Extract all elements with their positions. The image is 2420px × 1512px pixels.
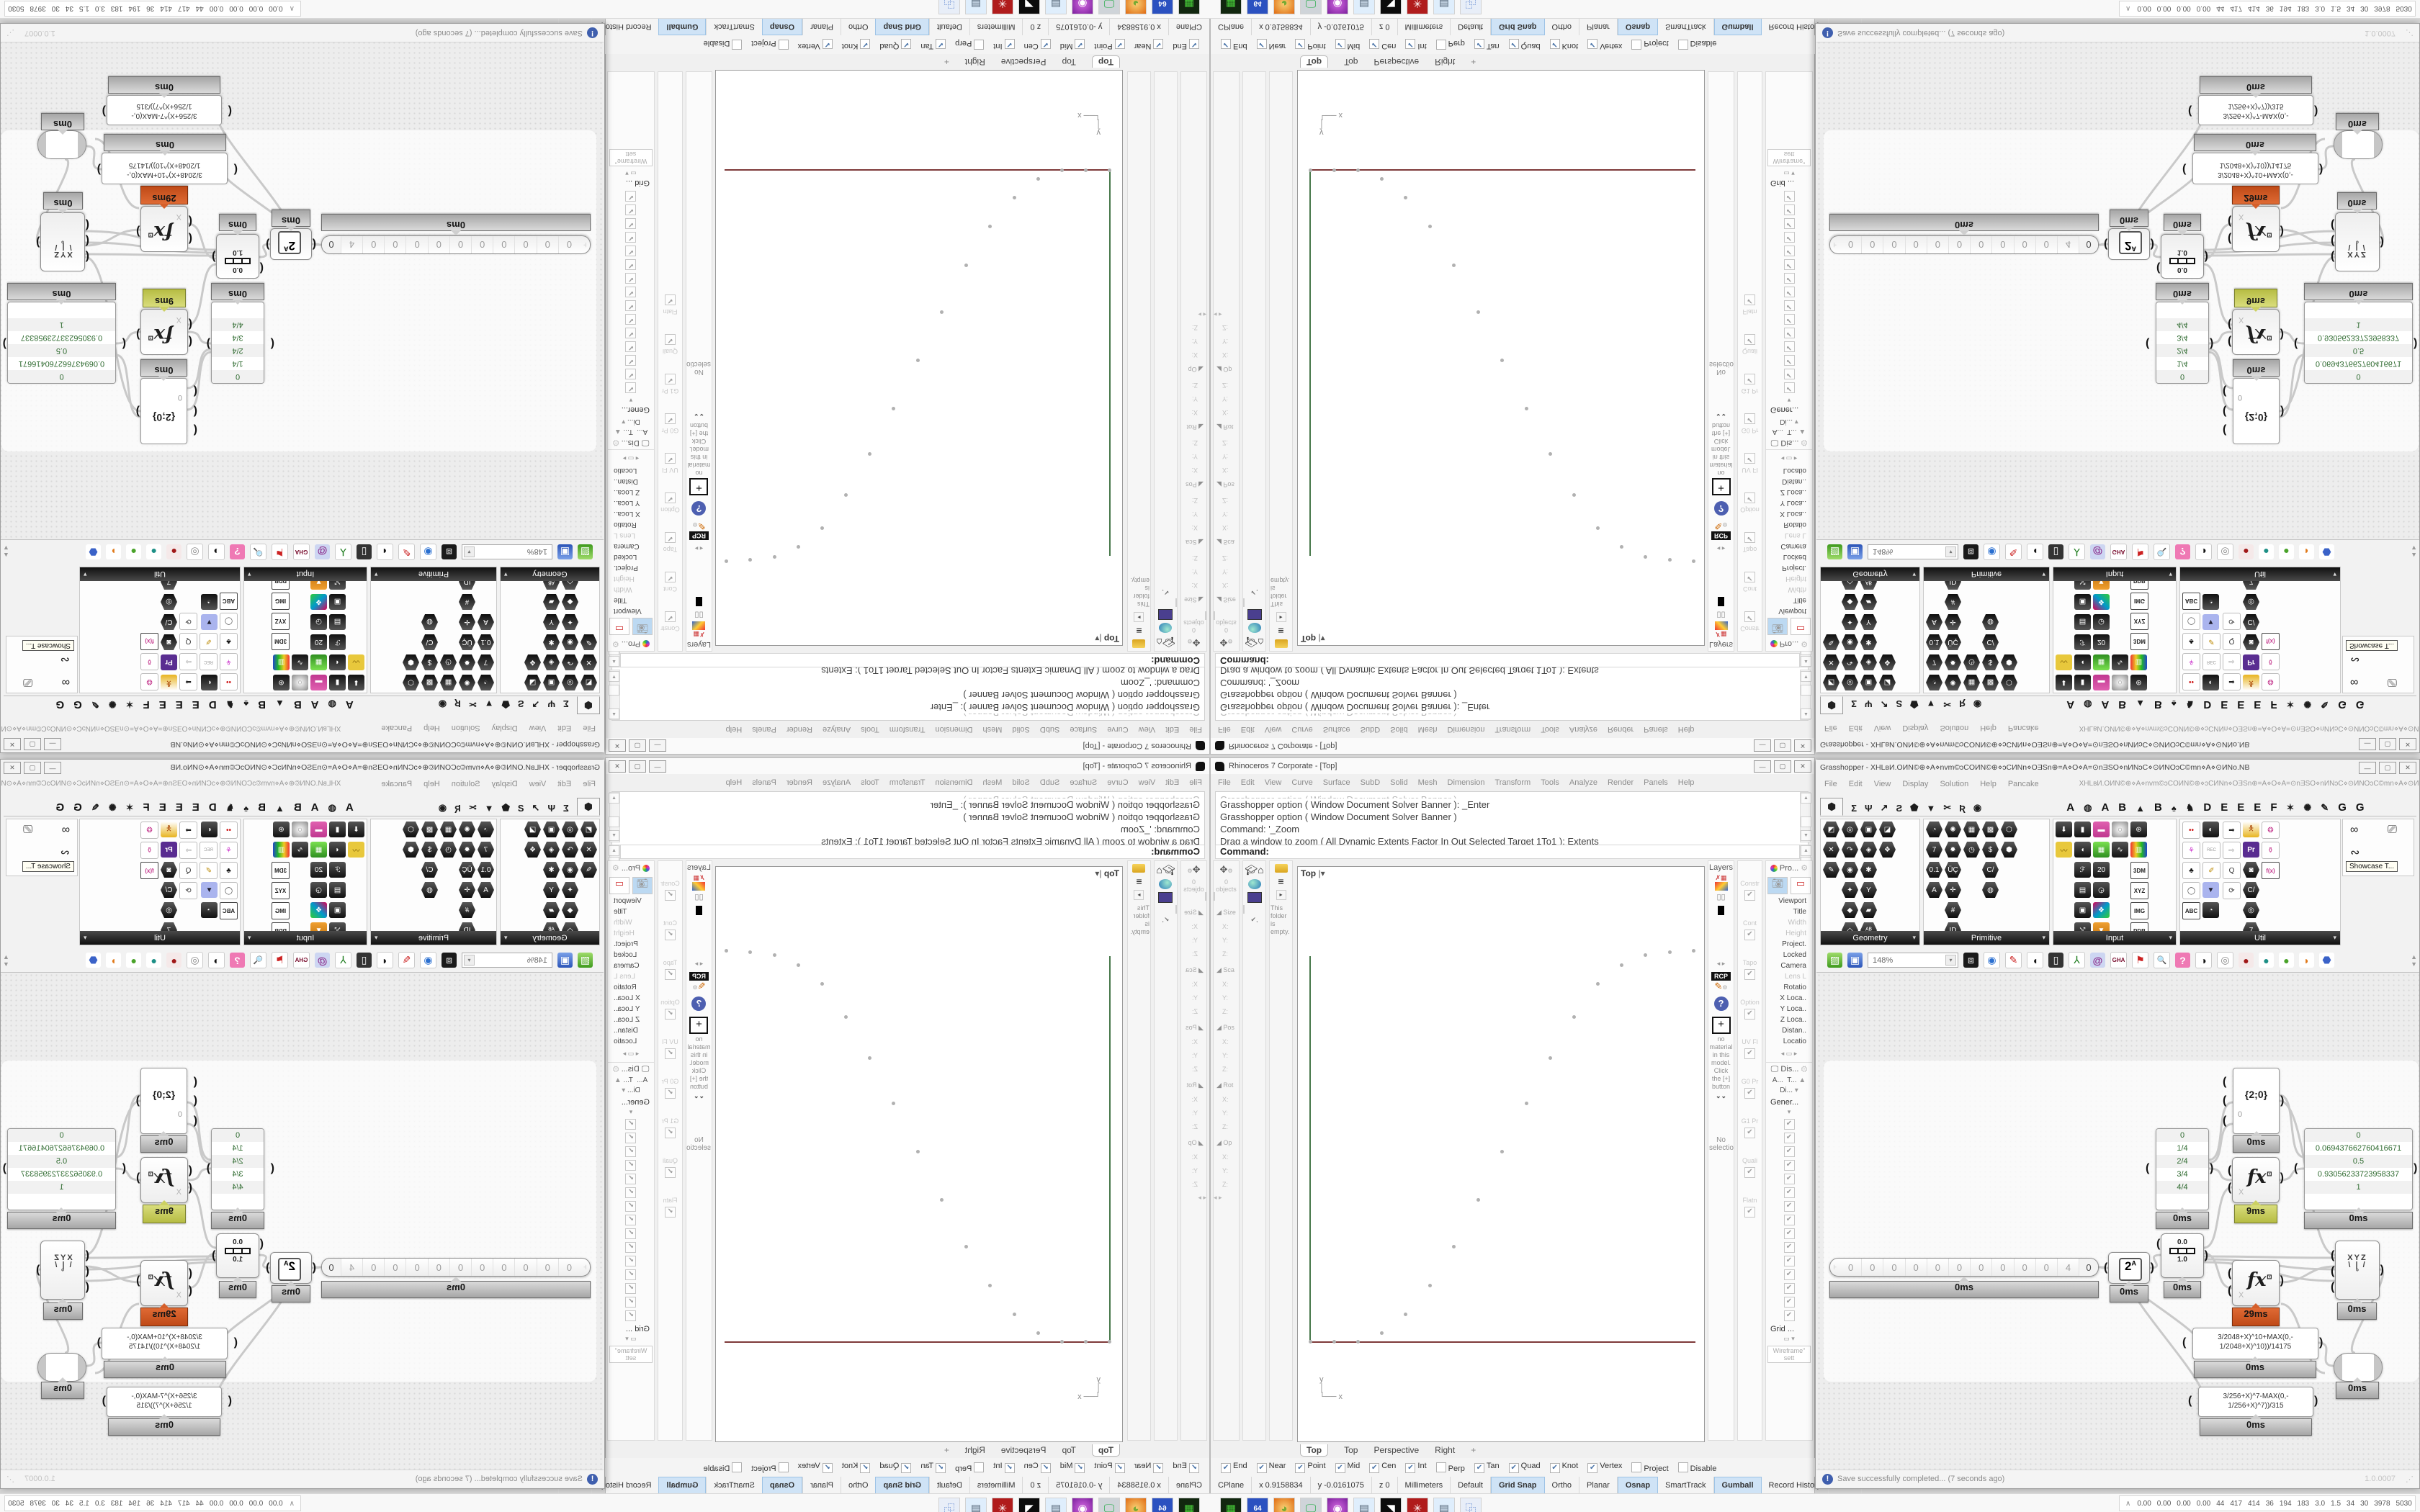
component-icon[interactable]: 〰 — [348, 842, 364, 858]
input-grip[interactable]: ( — [122, 1164, 126, 1173]
component-icon[interactable]: ▣ — [543, 822, 560, 837]
viewport-tab[interactable]: Top — [1344, 1445, 1358, 1455]
scroller-digit[interactable]: 0 — [1971, 1259, 1992, 1276]
viewport-tab[interactable]: Right — [1435, 1445, 1455, 1455]
component-icon[interactable]: ⬡ — [2001, 822, 2017, 837]
component-icon[interactable]: IMG — [2130, 902, 2148, 919]
formula-panel[interactable]: 3/2048+X)^10+MAX(0,-1/2048+X)^10))/14175 — [2192, 1328, 2318, 1359]
gh-toolbar-icon[interactable]: ◑ — [208, 544, 225, 560]
component-icon[interactable]: ♣ — [2182, 633, 2200, 650]
expression-component[interactable]: ( ( X fx⊡ ) — [2232, 309, 2280, 355]
gh-plugin-tab[interactable]: E — [159, 696, 166, 711]
osnap-toggle[interactable]: Tan — [1474, 39, 1500, 50]
glasses-icon[interactable]: ∞ — [62, 675, 70, 688]
display-checkbox[interactable]: ✔ — [626, 355, 637, 366]
power-component[interactable]: ( 2A ) — [270, 228, 312, 260]
component-icon[interactable]: ◖ — [329, 842, 346, 858]
gh-plugin-tab[interactable]: E — [176, 696, 183, 711]
component-icon[interactable]: ⊛ — [2130, 675, 2147, 690]
gh-group-shelf[interactable]: Geometry▾ — [1821, 567, 1919, 581]
gh-toolbar-icon[interactable]: ▣ — [1847, 544, 1863, 559]
gh-toolbar-icon[interactable]: ✎ — [2005, 952, 2022, 968]
output-grip[interactable]: ) — [2205, 1251, 2208, 1260]
gh-toolbar-icon[interactable]: ⧈ — [1963, 953, 1978, 968]
input-grip[interactable]: ( — [189, 1166, 192, 1175]
component-icon[interactable]: ◔ — [2202, 594, 2219, 610]
status-cell[interactable]: y -0.0161075 — [1048, 18, 1109, 35]
scroll-down-icon[interactable]: ▼ — [1801, 830, 1811, 841]
gh-toolbar-icon[interactable]: ◗ — [2299, 953, 2314, 968]
osnap-checkbox[interactable] — [1474, 1463, 1484, 1473]
option-checkbox[interactable]: ✔ — [1744, 492, 1755, 503]
gh-toolbar-icon[interactable]: ⧈ — [442, 953, 457, 968]
display-panel-title[interactable]: 🖵 Dis... ⚙ — [1766, 436, 1812, 450]
expression-component[interactable]: ( ( X fx⊡ ) — [2232, 1157, 2280, 1203]
rhino-menu-item[interactable]: Mesh — [982, 778, 1002, 787]
gh-tab-icon[interactable]: Ψ — [547, 696, 555, 709]
scroll-down-icon[interactable]: ▼ — [1801, 671, 1811, 682]
checkbox-icon[interactable]: ✔, — [1155, 916, 1177, 924]
component-icon[interactable]: ◍ — [1982, 614, 1999, 630]
h-scrollbar[interactable]: ◂ ▭ ▸ — [608, 1050, 654, 1058]
minimize-icon[interactable]: — — [44, 738, 61, 750]
gh-plugin-tab[interactable]: ♞ — [226, 696, 235, 710]
property-row[interactable]: Title — [608, 596, 654, 607]
input-grip[interactable]: ( — [86, 236, 89, 245]
scroller-digit[interactable]: 0 — [362, 236, 384, 253]
values-panel[interactable]: 00.0694376627604166710.50.93056233723958… — [7, 302, 116, 384]
scroller-arrow-icon[interactable]: ⊦ — [1830, 1259, 1840, 1276]
rhino-menu-item[interactable]: File — [1189, 725, 1202, 734]
property-row[interactable]: Y Loca.. — [1766, 1002, 1812, 1013]
osnap-toggle[interactable]: Quad — [879, 39, 911, 50]
component-icon[interactable]: ✦ — [1842, 882, 1858, 898]
display-checkbox[interactable]: ✔ — [626, 382, 637, 393]
component-icon[interactable]: ➡ — [179, 822, 197, 839]
component-icon[interactable]: ✎ — [581, 862, 597, 878]
component-icon[interactable]: ⬢ — [403, 654, 419, 670]
rhino-menu-item[interactable]: Tools — [861, 778, 879, 787]
banner-icon[interactable]: ⎚ — [2388, 675, 2397, 688]
gh-tab-icon[interactable]: ⬟ — [1910, 802, 1918, 816]
component-icon[interactable]: C/ — [1982, 634, 1999, 650]
help-icon[interactable]: ? — [1714, 501, 1729, 516]
component-icon[interactable]: ▼ — [2202, 614, 2219, 630]
osnap-toggle[interactable]: Tan — [920, 1462, 946, 1473]
status-cell[interactable]: z 0 — [1372, 1477, 1398, 1494]
viewport-top[interactable]: Top |▾ y│└── x — [715, 70, 1123, 646]
output-grip[interactable]: ) — [2414, 1164, 2417, 1173]
folder-panel[interactable]: ≡ ▸ This folder is empty. — [1269, 860, 1293, 1441]
component-icon[interactable]: ✺ — [1945, 822, 1961, 837]
gh-tab-icon[interactable]: Σ — [563, 696, 569, 709]
option-checkbox[interactable]: ✔ — [665, 294, 676, 305]
osnap-toggle[interactable]: Point — [1295, 1462, 1325, 1473]
property-row[interactable]: Width — [608, 585, 654, 596]
gh-tab-icon[interactable]: Ψ — [1865, 696, 1873, 709]
expression-component[interactable]: ( ( X fx⊡ ) — [140, 1260, 188, 1306]
component-icon[interactable]: ▼ — [201, 882, 218, 898]
component-icon[interactable]: C/ — [2243, 614, 2259, 630]
viewport-label[interactable]: Top |▾ — [1301, 634, 1325, 644]
close-icon[interactable]: ✕ — [2399, 738, 2416, 750]
osnap-checkbox[interactable] — [1041, 1463, 1051, 1473]
component-icon[interactable]: •• — [2182, 822, 2200, 839]
input-grip[interactable]: ( — [194, 426, 197, 434]
glasses-icon[interactable]: ∞ — [2350, 824, 2358, 837]
pager-icons[interactable]: ◂ ▸ — [1214, 310, 1239, 318]
new-layer-icon[interactable]: ▯▯ — [694, 893, 703, 901]
rcp-icon[interactable]: RCP — [1711, 972, 1731, 981]
osnap-checkbox[interactable] — [779, 1462, 789, 1472]
gh-toolbar-icon[interactable]: ? — [230, 544, 245, 559]
component-icon[interactable]: •• — [220, 822, 238, 839]
component-icon[interactable]: ◪ — [524, 675, 541, 690]
gh-toolbar-icon[interactable]: ? — [2175, 953, 2190, 968]
taskbar-app-icon[interactable]: ✳ — [1407, 1498, 1428, 1512]
transform-panel[interactable]: ✥⚙ 0 objects Size X: Y: Z: — [1213, 860, 1240, 1441]
gh-group-shelf[interactable]: Primitive▾ — [1924, 567, 2049, 581]
display-checkbox[interactable]: ✔ — [626, 1269, 637, 1280]
option-checkbox[interactable]: ✔ — [1744, 413, 1755, 424]
component-icon[interactable]: ◆ — [1842, 902, 1858, 918]
display-checkbox[interactable]: ✔ — [1784, 382, 1795, 393]
color-gradient-icon[interactable] — [693, 621, 706, 630]
gh-plugin-tab[interactable]: B — [2118, 696, 2126, 711]
gh-toolbar-icon[interactable]: 🔍 — [2154, 952, 2170, 968]
properties-column[interactable]: Pro... ⚙ 📷︎▭ ViewportTitleWidthHeightPro… — [1765, 860, 1813, 1441]
scroll-up-icon[interactable]: ▲ — [1801, 708, 1811, 719]
gh-tab-icon[interactable]: ✂ — [1943, 696, 1951, 710]
property-row[interactable]: Width — [1766, 585, 1812, 596]
help-icon[interactable]: ? — [1714, 996, 1729, 1011]
input-grip[interactable]: ( — [2331, 220, 2334, 229]
scroller-digit[interactable]: 0 — [1862, 236, 1883, 253]
option-checkbox[interactable]: ✔ — [665, 930, 676, 940]
input-grip[interactable]: ( — [2228, 1269, 2231, 1278]
hamburger-icon[interactable]: ≡ — [1128, 625, 1150, 636]
rhino-menu-item[interactable]: Solid — [1012, 778, 1029, 787]
display-checkbox[interactable]: ✔ — [1784, 273, 1795, 284]
input-grip[interactable]: ( — [271, 339, 274, 348]
component-icon[interactable]: ◍ — [1982, 882, 1999, 898]
scroller-arrow-icon[interactable]: ⊦ — [1830, 236, 1840, 253]
property-row[interactable]: Height — [608, 575, 654, 585]
folder-icon[interactable] — [1275, 639, 1288, 648]
component-icon[interactable]: ⟳ — [179, 882, 197, 899]
output-grip[interactable]: ) — [102, 107, 106, 115]
rhino-menu-item[interactable]: Panels — [1644, 778, 1668, 787]
camera-monitor-icon[interactable] — [1159, 609, 1173, 620]
osnap-toggle[interactable]: Int — [1405, 39, 1426, 50]
gh-tab-icon[interactable]: ◉ — [439, 696, 447, 710]
input-grip[interactable]: ( — [86, 1251, 89, 1260]
component-icon[interactable]: A — [478, 614, 494, 630]
digit-scroller[interactable]: ⊦ 00000000004 0 — [321, 235, 591, 254]
gh-plugin-tab[interactable]: A — [346, 696, 354, 711]
status-cell[interactable]: Gumball — [658, 1477, 706, 1494]
gh-group-shelf[interactable]: Primitive▾ — [371, 567, 496, 581]
component-icon[interactable]: ▩ — [421, 675, 438, 690]
property-row[interactable]: Title — [1766, 905, 1812, 916]
option-checkbox[interactable]: ✔ — [1744, 453, 1755, 464]
input-grip[interactable]: ( — [2156, 1240, 2160, 1248]
input-grip[interactable]: ( — [189, 217, 192, 225]
display-checkbox[interactable]: ✔ — [626, 191, 637, 202]
component-icon[interactable]: ◶ — [310, 614, 327, 630]
component-icon[interactable]: ◷ — [440, 654, 457, 670]
component-icon[interactable]: ⚱ — [140, 653, 158, 670]
layer-state-icon[interactable]: ✗▦ — [693, 874, 704, 881]
target-properties-button[interactable]: ▭ — [609, 877, 629, 894]
scroller-digit[interactable]: 0 — [2015, 236, 2036, 253]
osnap-checkbox[interactable] — [1075, 39, 1085, 49]
option-checkbox[interactable]: ✔ — [1744, 1128, 1755, 1138]
component-icon[interactable]: ▤ — [329, 614, 346, 630]
gh-tab-icon[interactable]: Σ — [1851, 803, 1857, 816]
component-icon[interactable]: ✹ — [1945, 654, 1961, 670]
osnap-checkbox[interactable] — [1221, 39, 1231, 49]
property-row[interactable]: Height — [1766, 575, 1812, 585]
fractions-panel[interactable]: 01/42/43/44/4 — [211, 1128, 264, 1210]
output-grip[interactable]: ) — [3, 339, 6, 348]
gh-toolbar-icon[interactable]: ⧈ — [1963, 544, 1978, 559]
camera-properties-button[interactable]: 📷︎ — [1767, 618, 1788, 635]
osnap-toggle[interactable]: Tan — [1474, 1462, 1500, 1473]
component-icon[interactable]: ⬡ — [403, 675, 419, 690]
output-grip[interactable]: ) — [2314, 107, 2318, 115]
rhino-menu-item[interactable]: Curve — [1291, 725, 1312, 734]
toolbar-overflow-icon[interactable]: ▲▼ — [3, 953, 9, 968]
maximize-icon[interactable]: ▢ — [629, 760, 646, 773]
component-icon[interactable]: 0.1 — [1926, 862, 1942, 878]
osnap-checkbox[interactable] — [1678, 1462, 1688, 1472]
component-icon[interactable]: # — [459, 902, 475, 918]
properties-title[interactable]: Pro... ⚙ — [608, 637, 654, 651]
component-icon[interactable]: ❖ — [2093, 902, 2110, 918]
input-grip[interactable]: ( — [2294, 339, 2298, 348]
property-row[interactable]: Locatio — [608, 467, 654, 477]
property-row[interactable]: Project. — [608, 564, 654, 575]
glasses2-icon[interactable]: ∾ — [60, 652, 70, 667]
component-icon[interactable]: ◎ — [1842, 675, 1858, 690]
new-layer-icon[interactable]: ▯▯ — [1716, 893, 1725, 901]
gh-toolbar-icon[interactable]: ▯ — [2048, 953, 2063, 968]
component-icon[interactable]: ❂ — [2262, 822, 2280, 839]
rhino-menu-item[interactable]: Surface — [1323, 778, 1350, 787]
input-grip[interactable]: ( — [2228, 337, 2231, 346]
viewport-tab[interactable]: Right — [1435, 57, 1455, 67]
rhino-menu-item[interactable]: Surface — [1323, 725, 1350, 734]
gh-plugin-tab[interactable]: G — [55, 696, 64, 711]
gh-menu-item[interactable]: Solution — [1940, 780, 1968, 788]
close-icon[interactable]: ✕ — [609, 739, 626, 752]
taskbar-app-icon[interactable]: ◥ — [1380, 0, 1402, 14]
input-grip[interactable]: ( — [194, 1117, 197, 1125]
property-row[interactable]: Project. — [1766, 564, 1812, 575]
gear-icon[interactable]: ⚙ — [612, 864, 619, 873]
stats-widget[interactable]: ∧ 0.000.000.000.0044417414361941833.01.5… — [4, 1495, 301, 1511]
viewport-tab[interactable]: Perspective — [1001, 1445, 1047, 1455]
component-icon[interactable]: 20 — [310, 862, 327, 878]
display-checkbox[interactable]: ✔ — [626, 369, 637, 379]
display-checkbox[interactable]: ✔ — [1784, 1146, 1795, 1157]
display-checkbox[interactable]: ✔ — [1784, 1297, 1795, 1308]
component-icon[interactable]: ⇨ — [179, 653, 197, 670]
section-header[interactable]: Size — [1181, 900, 1206, 917]
component-icon[interactable]: ◖ — [329, 654, 346, 670]
wireframe-settings[interactable]: Wireframe" sett — [609, 1346, 653, 1363]
gh-tab-icon[interactable]: ⬟ — [502, 802, 510, 816]
input-grip[interactable]: ( — [2223, 407, 2226, 415]
scroller-digit[interactable]: 0 — [428, 1259, 449, 1276]
rhino-menu-item[interactable]: Dimension — [1448, 778, 1485, 787]
option-checkbox[interactable]: ✔ — [665, 492, 676, 503]
component-icon[interactable]: ▦ — [1963, 822, 1980, 837]
gh-plugin-tab[interactable]: ✎ — [2321, 802, 2329, 816]
gh-toolbar-icon[interactable]: ● — [2279, 953, 2294, 968]
properties-column[interactable]: Pro... ⚙ 📷︎▭ ViewportTitleWidthHeightPro… — [607, 860, 655, 1441]
command-history[interactable]: Grasshopper option ( Window Document Sol… — [611, 791, 1205, 847]
output-grip[interactable]: ) — [136, 1277, 140, 1285]
property-row[interactable]: Locatio — [1766, 467, 1812, 477]
graduation-cap-icon[interactable]: 🎓︎⌂ — [1155, 636, 1177, 648]
osnap-toggle[interactable]: Project — [1631, 1462, 1668, 1473]
taskbar-app-icon[interactable]: ✳ — [1407, 0, 1428, 14]
checkbox-icon[interactable]: ✔, — [1243, 588, 1265, 596]
display-checkbox[interactable]: ✔ — [626, 1228, 637, 1239]
gh-plugin-tab[interactable]: D — [2203, 696, 2211, 711]
command-scrollbar[interactable]: ▲ ▼ — [1800, 670, 1811, 720]
component-icon[interactable]: ◷ — [1963, 842, 1980, 858]
display-checkbox[interactable]: ✔ — [626, 1119, 637, 1130]
input-grip[interactable]: ( — [2156, 264, 2160, 272]
stats-widget[interactable]: ∧ 0.000.000.000.0044417414361941833.01.5… — [4, 1, 301, 17]
component-icon[interactable]: f(x) — [2262, 862, 2280, 879]
gear-icon[interactable]: ⚙ — [1801, 438, 1807, 447]
display-checkbox[interactable]: ✔ — [626, 259, 637, 270]
taskbar-app-icon[interactable]: ✳ — [992, 1498, 1013, 1512]
rhino-menu-item[interactable]: Panels — [752, 725, 776, 734]
command-history[interactable]: Grasshopper option ( Window Document Sol… — [1215, 665, 1809, 721]
input-grip[interactable]: ( — [86, 1283, 89, 1292]
layer-state-icon[interactable]: ✗▦ — [1715, 631, 1726, 638]
display-checkbox[interactable]: ✔ — [626, 1242, 637, 1253]
gh-plugin-tab[interactable]: E — [2220, 696, 2228, 711]
output-grip[interactable]: ) — [36, 1266, 40, 1274]
scroller-digit[interactable]: 0 — [558, 1259, 580, 1276]
osnap-toggle[interactable]: Disable — [1678, 40, 1717, 50]
osnap-checkbox[interactable] — [1405, 39, 1415, 49]
component-icon[interactable]: ◍ — [421, 882, 438, 898]
add-viewport-icon[interactable]: + — [1471, 1445, 1476, 1455]
component-icon[interactable]: C/ — [421, 634, 438, 650]
component-icon[interactable]: ◈ — [543, 654, 560, 670]
path-panel[interactable]: {2;0} 0 — [140, 378, 187, 444]
osnap-toggle[interactable]: Quad — [1509, 1462, 1541, 1473]
status-cell[interactable]: x 0.9158834 — [1252, 1477, 1311, 1494]
gh-plugin-tab[interactable]: B — [2118, 801, 2126, 816]
component-icon[interactable]: ➡ — [2223, 822, 2241, 839]
component-icon[interactable]: ✱ — [543, 862, 560, 878]
osnap-checkbox[interactable] — [1550, 1463, 1560, 1473]
component-icon[interactable]: A — [1926, 882, 1942, 898]
osnap-toggle[interactable]: Perp — [955, 1462, 984, 1473]
osnap-checkbox[interactable] — [1005, 39, 1015, 49]
output-grip[interactable]: ) — [2151, 240, 2154, 248]
scroller-digit[interactable]: 0 — [1949, 1259, 1971, 1276]
gh-plugin-tab[interactable]: F — [143, 696, 150, 711]
digit-scroller[interactable]: ⊦ 00000000004 0 — [1829, 1258, 2099, 1277]
gh-menu-item[interactable]: Solution — [1940, 724, 1968, 732]
gh-menu-item[interactable]: Pancake — [2008, 724, 2039, 732]
component-icon[interactable]: ◪ — [1879, 822, 1896, 837]
formula-panel[interactable]: 3/256+X)^7-MAX(0,-1/256+X)^7))/315 — [107, 1387, 222, 1417]
component-icon[interactable]: f(x) — [140, 862, 158, 879]
viewport-top[interactable]: Top |▾ y│└── x — [715, 866, 1123, 1442]
input-grip[interactable]: ( — [271, 1164, 274, 1173]
gh-menu-item[interactable]: Pancake — [2008, 780, 2039, 788]
component-icon[interactable]: ◌ — [2112, 822, 2128, 837]
taskbar-app-icon[interactable]: ▤ — [1353, 1498, 1375, 1512]
display-checkbox[interactable]: ✔ — [1784, 1160, 1795, 1171]
component-icon[interactable]: IMG — [272, 902, 290, 919]
display-checkbox[interactable]: ✔ — [626, 1297, 637, 1308]
gh-toolbar-icon[interactable]: ● — [2259, 544, 2274, 559]
scroller-digit[interactable]: 0 — [493, 1259, 514, 1276]
osnap-checkbox[interactable] — [732, 1462, 742, 1472]
construct-point-component[interactable]: ( ( ( XYZ\ | /° ) — [2335, 1241, 2380, 1300]
component-icon[interactable]: ⚱ — [2262, 653, 2280, 670]
rhino-menu-item[interactable]: Transform — [889, 778, 926, 787]
status-cell[interactable]: Ortho — [1545, 18, 1580, 35]
command-prompt[interactable]: Command: — [620, 653, 1205, 667]
gh-plugin-tab[interactable]: D — [209, 801, 217, 816]
layers-materials-column[interactable]: Layers ✗▦ ▯▯ ◂ ▸ RCP ✎⚙ ? + no material … — [1708, 860, 1734, 1441]
toolbar-overflow-icon[interactable]: ▲▼ — [2411, 953, 2417, 968]
display-checkbox[interactable]: ✔ — [1784, 300, 1795, 311]
taskbar-app-icon[interactable]: ◕ — [1273, 0, 1295, 14]
component-icon[interactable]: ▩ — [1982, 675, 1999, 690]
component-icon[interactable]: ✕ — [581, 654, 597, 670]
property-row[interactable]: Viewport — [608, 894, 654, 905]
scroll-down-icon[interactable]: ▼ — [609, 671, 619, 682]
component-icon[interactable]: ▣ — [543, 675, 560, 690]
output-grip[interactable]: ) — [97, 1338, 101, 1347]
gh-plugin-tab[interactable]: ✺ — [2303, 696, 2311, 710]
scroller-digit[interactable]: 0 — [471, 236, 493, 253]
maximize-icon[interactable]: ▢ — [24, 738, 41, 750]
expand-icon[interactable]: ▸ — [1134, 890, 1144, 900]
gh-toolbar-icon[interactable]: ● — [126, 544, 141, 559]
component-icon[interactable]: XYZ — [272, 613, 290, 630]
display-panel-title[interactable]: 🖵 Dis... ⚙ — [608, 436, 654, 450]
osnap-checkbox[interactable] — [1335, 39, 1345, 49]
component-icon[interactable]: ◩ — [1823, 822, 1839, 837]
target-properties-button[interactable]: ▭ — [1791, 618, 1811, 635]
stats-widget[interactable]: ∧ 0.000.000.000.0044417414361941833.01.5… — [2119, 1, 2416, 17]
add-material-button[interactable]: + — [1712, 478, 1731, 495]
chevron-down-icon[interactable]: |▾ — [1318, 634, 1325, 644]
expression-component[interactable]: ( ( X fx⊡ ) — [140, 206, 188, 252]
osnap-checkbox[interactable] — [901, 39, 911, 49]
gh-group-shelf[interactable]: Geometry▾ — [501, 567, 599, 581]
component-icon[interactable]: ❖ — [524, 842, 541, 858]
taskbar-app-icon[interactable]: ✳ — [992, 0, 1013, 14]
gh-toolbar-icon[interactable]: ✎ — [2005, 544, 2022, 560]
formula-panel[interactable]: 3/256+X)^7-MAX(0,-1/256+X)^7))/315 — [2198, 1387, 2313, 1417]
status-cell[interactable]: SmartTrack — [706, 1477, 761, 1494]
